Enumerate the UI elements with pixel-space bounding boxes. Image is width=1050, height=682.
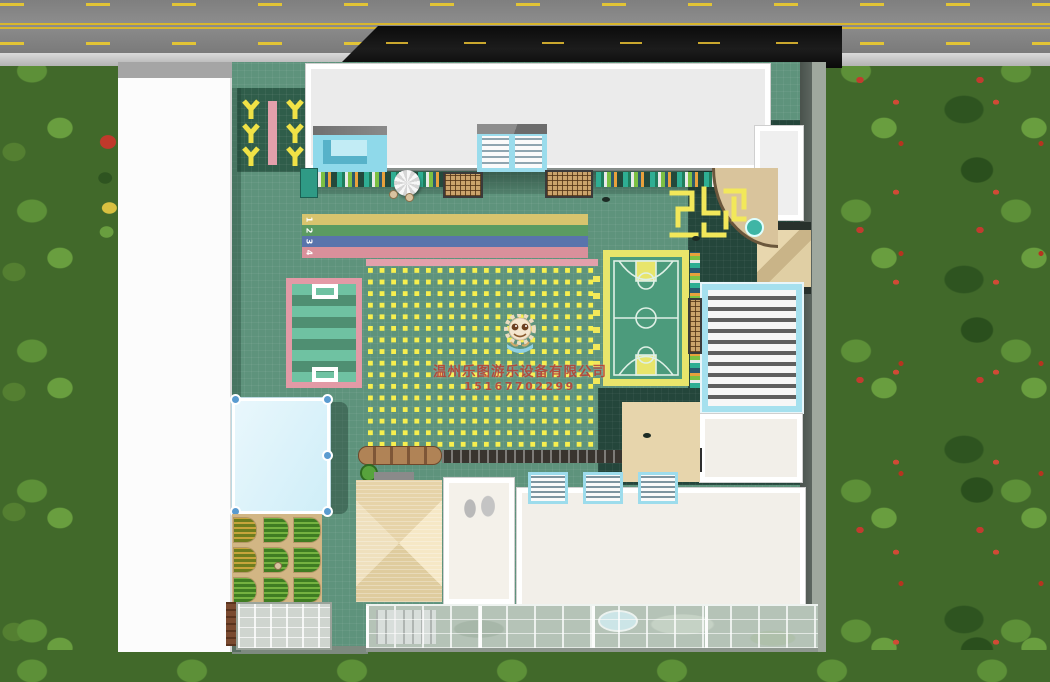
pool-shadow xyxy=(330,402,348,514)
climbing-net xyxy=(443,172,483,198)
soccer-field xyxy=(286,278,362,388)
cyan-pavilion-mid xyxy=(477,124,547,172)
pavilion-peak-roof xyxy=(477,124,547,134)
spiral-slide xyxy=(394,170,420,196)
figure xyxy=(274,562,282,570)
sand-mound xyxy=(622,402,700,482)
louver-slats xyxy=(531,475,565,501)
louvered-pergola xyxy=(702,284,802,412)
greenhouse xyxy=(236,602,332,650)
pool-post xyxy=(322,394,333,405)
cyan-pavilion-left xyxy=(313,126,387,172)
road-center-line xyxy=(0,23,1050,25)
balance-course xyxy=(442,450,630,463)
figure xyxy=(405,193,414,202)
running-track: 1 2 3 4 xyxy=(302,214,588,259)
bottom-small-building xyxy=(444,478,514,604)
wood-rack xyxy=(226,602,236,646)
company-name: 温州乐图游乐设备有限公司 xyxy=(430,360,610,380)
lane-number: 2 xyxy=(304,228,313,234)
left-building-roof xyxy=(118,78,232,652)
glass-canopy xyxy=(366,604,818,652)
playground-siteplan-render: 1 2 3 4 xyxy=(0,0,1050,682)
teal-cabinet xyxy=(300,168,318,198)
figure xyxy=(602,197,610,202)
garden-bed xyxy=(234,548,256,572)
grass-right xyxy=(824,50,1050,682)
goal-box-bottom xyxy=(312,367,338,382)
louver-slats xyxy=(586,475,620,501)
log-balance-row xyxy=(358,446,442,465)
track-lane-4: 4 xyxy=(302,247,588,258)
goal-box-top xyxy=(312,284,338,299)
louver-unit xyxy=(583,472,623,504)
track-lane-1: 1 xyxy=(302,214,588,225)
garden-bed xyxy=(234,518,256,542)
hip-roof-pavilion xyxy=(356,480,442,602)
climbing-net xyxy=(545,170,593,198)
lane-number: 3 xyxy=(304,239,313,245)
pool-post xyxy=(322,506,333,517)
louver-panel xyxy=(482,136,509,168)
lane-number: 1 xyxy=(304,217,313,223)
phone-number: 15167702299 xyxy=(430,380,610,393)
garden-bed xyxy=(294,518,320,542)
pavilion-roof-edge xyxy=(313,126,387,135)
figure xyxy=(692,236,700,241)
splash-pool xyxy=(232,398,330,514)
basketball-court xyxy=(603,250,689,386)
pool-post xyxy=(230,394,241,405)
white-canopy xyxy=(700,414,802,482)
track-lane-3: 3 xyxy=(302,236,588,247)
louver-unit xyxy=(528,472,568,504)
mascot-logo xyxy=(502,314,538,356)
garden-bed xyxy=(264,518,288,542)
garden-bed xyxy=(264,578,288,602)
louver-panel xyxy=(515,136,542,168)
watermark: 温州乐图游乐设备有限公司 15167702299 xyxy=(430,314,610,393)
garden-bed xyxy=(234,578,256,602)
floor-maze xyxy=(662,183,750,241)
pool-post xyxy=(322,450,333,461)
pavilion-courtyard-inner xyxy=(331,140,367,156)
road-dashed-line xyxy=(0,3,1050,6)
grass-bottom xyxy=(0,650,1050,682)
pink-lane-stripe xyxy=(268,101,277,165)
garden-bed xyxy=(294,548,320,572)
louver-unit xyxy=(638,472,678,504)
louver-slats xyxy=(641,475,675,501)
rope-ladder xyxy=(688,298,702,354)
plaza-pink-border xyxy=(366,259,598,266)
lane-number: 4 xyxy=(304,250,313,256)
garden-area xyxy=(232,514,322,606)
garden-bed xyxy=(294,578,320,602)
overpass-dashed-line xyxy=(386,42,836,44)
figure xyxy=(643,433,651,438)
figure xyxy=(389,190,398,199)
track-lane-2: 2 xyxy=(302,225,588,236)
side-path xyxy=(812,62,826,652)
